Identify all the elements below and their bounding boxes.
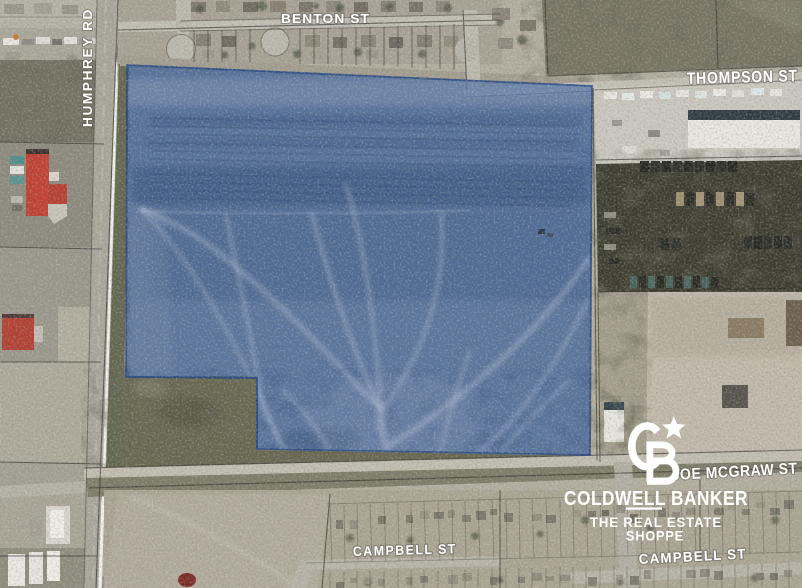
svg-text:CAMPBELL ST: CAMPBELL ST [353,541,457,559]
svg-text:BENTON ST: BENTON ST [281,12,370,26]
svg-text:THOMPSON ST: THOMPSON ST [687,67,798,88]
svg-text:COLDWELL BANKER: COLDWELL BANKER [564,488,748,510]
svg-text:SHOPPE: SHOPPE [626,529,684,544]
svg-text:HUMPHREY RD: HUMPHREY RD [80,8,95,127]
